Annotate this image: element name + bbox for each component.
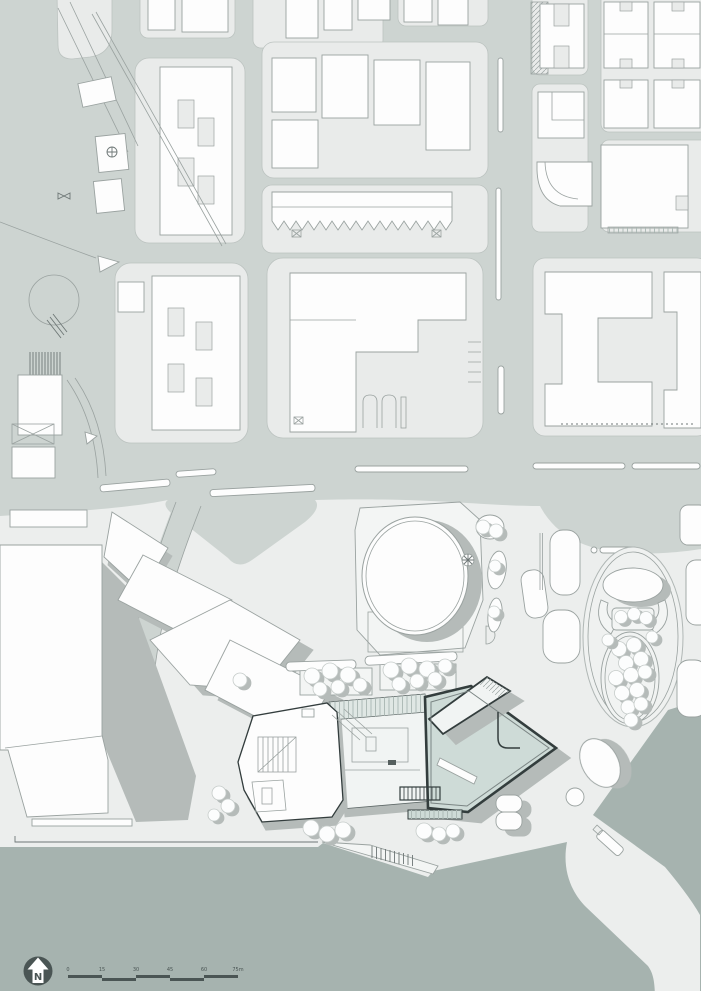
site-plan-drawing: N 0 15 30 45 60 75m <box>0 0 707 1000</box>
garden-pond <box>603 568 663 602</box>
sheet-margin-bottom <box>0 991 707 1000</box>
street-zebra-strip <box>608 227 678 233</box>
main-building-left-wing <box>238 703 343 822</box>
scale-tick-label: 60 <box>201 967 207 973</box>
scale-tick-label: 30 <box>133 967 139 973</box>
dumbbell-building-2 <box>152 276 240 430</box>
site-plan-sheet: N 0 15 30 45 60 75m <box>0 0 707 1000</box>
sawtooth-building <box>272 192 452 230</box>
h-building <box>540 4 584 68</box>
scale-tick-label: 0 <box>66 967 69 973</box>
north-arrow: N <box>24 957 53 986</box>
cog-structure <box>462 554 474 566</box>
loading-dock-strip <box>408 810 462 819</box>
l-building <box>538 92 584 138</box>
scale-tick-label: 75m <box>232 967 243 973</box>
circular-theatre <box>362 517 468 635</box>
rooftop-kiosk <box>302 709 314 717</box>
large-rect-building <box>601 145 688 228</box>
dumbbell-building <box>160 67 232 235</box>
scale-tick-label: 45 <box>167 967 173 973</box>
north-label: N <box>34 972 42 983</box>
oval-garden <box>583 547 683 727</box>
round-kiosk <box>566 788 584 806</box>
scale-tick-label: 15 <box>99 967 105 973</box>
left-large-building <box>0 545 108 817</box>
sheet-margin-right <box>701 0 707 1000</box>
